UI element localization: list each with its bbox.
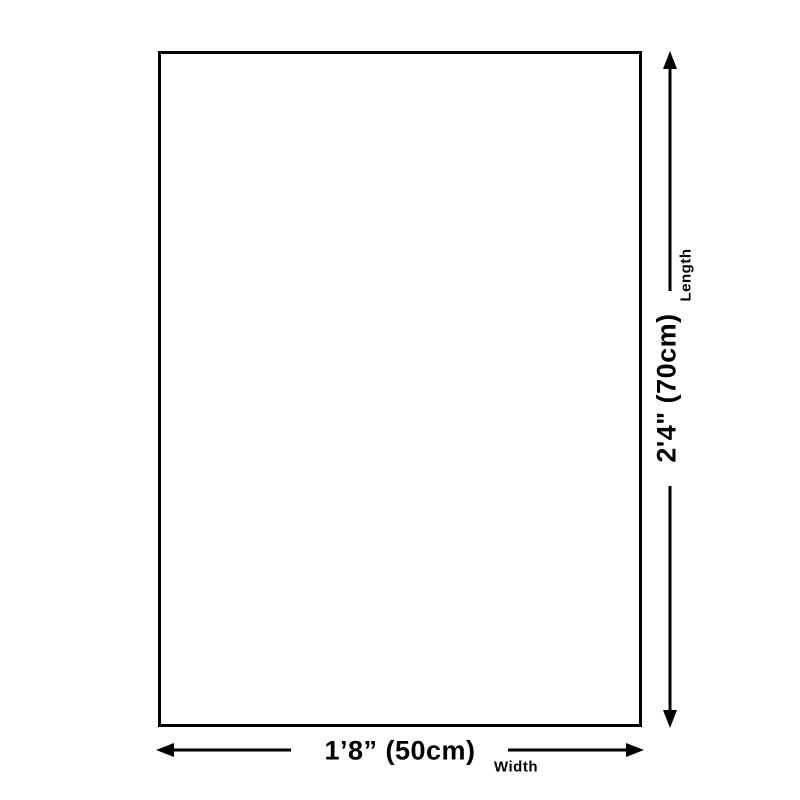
size-diagram: 1’8” (50cm) Width 2'4" (70cm) Length xyxy=(0,0,800,800)
width-dimension-value: 1’8” (50cm) xyxy=(324,736,475,767)
width-dimension-label: Width xyxy=(494,759,538,776)
arrowhead-right-icon xyxy=(626,743,644,757)
length-dimension-label: Length xyxy=(678,249,695,302)
length-dimension-value: 2'4" (70cm) xyxy=(652,313,683,462)
arrowhead-left-icon xyxy=(156,743,174,757)
arrowhead-up-icon xyxy=(663,51,677,69)
arrowhead-down-icon xyxy=(663,710,677,728)
